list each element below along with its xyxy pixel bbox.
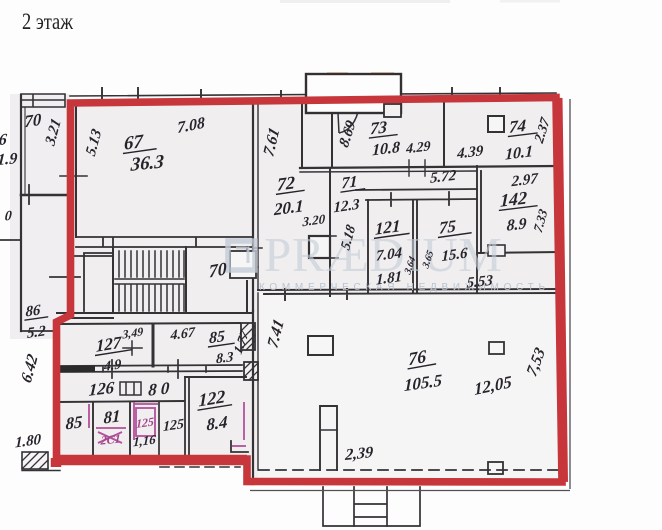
svg-text:1,16: 1,16 <box>133 432 157 450</box>
svg-text:10.1: 10.1 <box>505 143 533 164</box>
svg-text:74: 74 <box>509 116 527 137</box>
svg-text:2 этаж: 2 этаж <box>22 9 73 34</box>
svg-text:2С1: 2С1 <box>99 431 121 447</box>
svg-text:8.9: 8.9 <box>506 215 526 235</box>
svg-text:8.4: 8.4 <box>207 412 228 435</box>
svg-text:5.2: 5.2 <box>27 323 46 342</box>
svg-text:10.8: 10.8 <box>372 139 400 160</box>
svg-text:2,39: 2,39 <box>344 444 374 464</box>
svg-text:5.72: 5.72 <box>430 168 457 187</box>
svg-text:125: 125 <box>136 414 154 431</box>
svg-text:4.39: 4.39 <box>456 143 484 162</box>
svg-text:8 0: 8 0 <box>148 378 171 399</box>
svg-text:1.9: 1.9 <box>0 150 18 169</box>
svg-text:70: 70 <box>209 258 227 281</box>
svg-text:81: 81 <box>103 406 120 427</box>
svg-text:125: 125 <box>163 416 184 435</box>
svg-text:73: 73 <box>370 117 388 138</box>
svg-text:4.29: 4.29 <box>405 138 431 157</box>
svg-text:8.3: 8.3 <box>216 349 234 368</box>
svg-text:0: 0 <box>4 208 12 225</box>
svg-text:85: 85 <box>65 412 83 434</box>
svg-text:70: 70 <box>25 110 42 132</box>
svg-text:4.9: 4.9 <box>103 356 121 375</box>
svg-text:5.53: 5.53 <box>466 273 493 292</box>
svg-text:72: 72 <box>277 172 295 195</box>
svg-text:126: 126 <box>88 378 115 400</box>
svg-text:36.3: 36.3 <box>129 151 165 176</box>
